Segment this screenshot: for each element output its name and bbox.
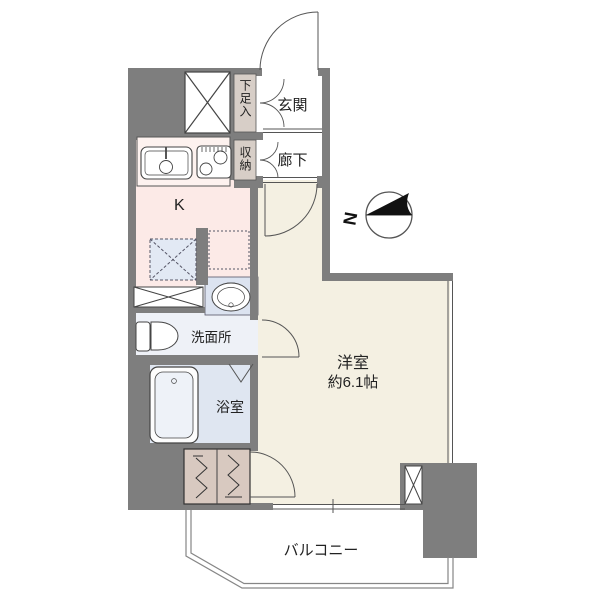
stove xyxy=(197,146,231,178)
bathtub xyxy=(150,367,198,443)
pipe-space-x-box xyxy=(405,466,422,504)
kitchen-sink xyxy=(141,147,192,179)
toilet xyxy=(136,322,178,351)
western-room-size: 約6.1帖 xyxy=(312,371,394,392)
entrance-label: 玄関 xyxy=(270,94,315,115)
compass xyxy=(366,192,412,238)
fridge-space-box xyxy=(150,239,196,280)
shaft-x-box xyxy=(185,72,230,133)
western-room-floor xyxy=(250,180,450,505)
washbasin xyxy=(212,283,250,311)
western-room-label: 洋室 xyxy=(317,349,389,373)
closet xyxy=(184,449,250,504)
entrance-door-arc xyxy=(260,12,318,70)
washroom-label: 洗面所 xyxy=(191,326,232,346)
floor-plan-drawing xyxy=(0,0,600,600)
shoe-box-label: 下足入 xyxy=(237,79,254,131)
structural-column xyxy=(423,463,477,558)
bathroom-label: 浴室 xyxy=(216,397,244,417)
washer-space-box xyxy=(209,231,249,269)
counter-x-box xyxy=(134,287,203,307)
floor-plan: 玄関 廊下 下足入 収納 K 洗面所 浴室 洋室 約6.1帖 バルコニー N xyxy=(0,0,600,600)
kitchen-label: K xyxy=(174,197,185,215)
hallway-label: 廊下 xyxy=(270,149,315,170)
balcony-label: バルコニー xyxy=(262,539,380,560)
storage-label: 収納 xyxy=(237,146,254,178)
